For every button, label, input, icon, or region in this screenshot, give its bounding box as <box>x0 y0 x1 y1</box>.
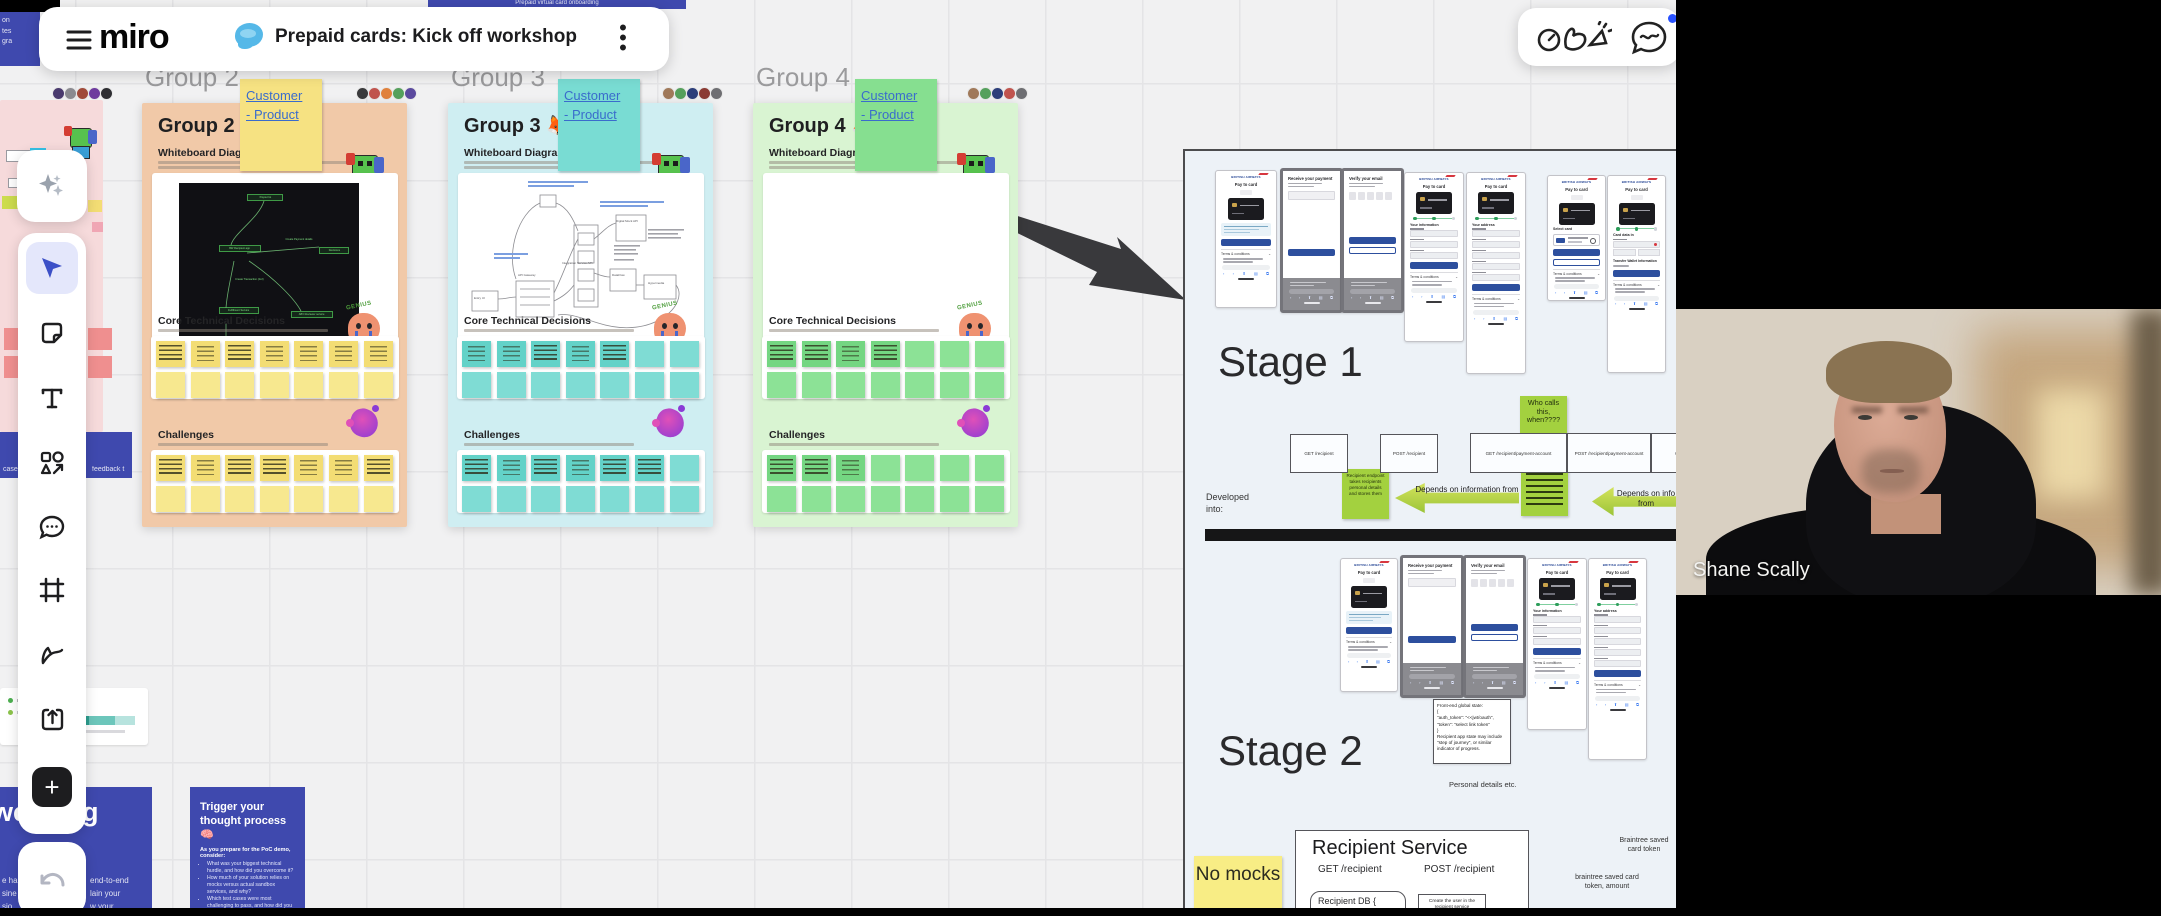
sticky-grid-card <box>457 336 705 399</box>
phone-title: Verify your email <box>1349 176 1396 181</box>
mini-sticky-note[interactable] <box>364 455 393 481</box>
phone-mockup[interactable]: BRITISH AIRWAYSPay to cardTerms & condit… <box>1340 558 1398 692</box>
ai-sparkles-icon[interactable] <box>25 160 77 212</box>
mini-sticky-note[interactable] <box>462 455 491 481</box>
arrow-to-stage-board <box>1005 213 1186 300</box>
sticky-link-product[interactable]: - Product <box>246 107 299 122</box>
mini-sticky-note[interactable] <box>871 455 900 481</box>
undo-icon[interactable] <box>26 855 78 907</box>
mini-sticky-note[interactable] <box>600 372 629 398</box>
mini-sticky-note[interactable] <box>975 372 1004 398</box>
mini-sticky-note[interactable] <box>462 372 491 398</box>
mini-sticky-note[interactable] <box>767 455 796 481</box>
sticky-link-product[interactable]: - Product <box>564 107 617 122</box>
sticky-note-tool[interactable] <box>26 307 78 359</box>
mini-sticky-note[interactable] <box>905 372 934 398</box>
mini-sticky-note[interactable] <box>871 372 900 398</box>
mini-sticky-note[interactable] <box>156 486 185 512</box>
mini-sticky-note[interactable] <box>329 455 358 481</box>
mini-sticky-note[interactable] <box>802 455 831 481</box>
mini-sticky-note[interactable] <box>975 486 1004 512</box>
section-subtext-line <box>158 329 328 332</box>
diagram-node-label: DataFlow <box>612 273 625 277</box>
mini-sticky-note[interactable] <box>497 455 526 481</box>
mini-sticky-note[interactable] <box>940 341 969 367</box>
thought-bubble-icon <box>235 23 263 47</box>
person-eye-r <box>1904 415 1918 420</box>
group-title: Group 3 🦊 <box>464 113 571 138</box>
avatar <box>1015 87 1028 100</box>
add-plus-tool[interactable]: + <box>26 761 78 813</box>
create-user-box[interactable]: Create the user in the recipient service <box>1418 894 1486 908</box>
mini-sticky-note[interactable] <box>225 372 254 398</box>
pink-splat-sticker <box>957 405 993 443</box>
sticky-grid-card <box>151 450 399 513</box>
phone-title: Receive your payment <box>1408 563 1456 568</box>
person-brow-shadow <box>1852 407 1882 413</box>
section-subtext-line <box>158 443 328 446</box>
sticky-grid-card <box>457 450 705 513</box>
main-toolbar: + <box>18 233 86 834</box>
mini-sticky-note[interactable] <box>836 486 865 512</box>
mini-sticky-note[interactable] <box>497 341 526 367</box>
mini-sticky-note[interactable] <box>670 486 699 512</box>
miro-logo[interactable]: miro <box>99 18 169 57</box>
phone-title: Pay to card <box>1548 187 1605 192</box>
diagram-node-label: Hypermedia <box>648 281 664 285</box>
chat-bubble-icon[interactable] <box>1630 20 1668 56</box>
mini-sticky-note[interactable] <box>670 341 699 367</box>
sticky-customer-product[interactable]: Customer- Product <box>240 79 322 171</box>
frontend-note-line: indicator of progress. <box>1437 746 1507 752</box>
video-feed: Shane Scally <box>1676 309 2161 595</box>
avatar <box>710 87 723 100</box>
mini-sticky-note[interactable] <box>364 486 393 512</box>
mini-sticky-note[interactable] <box>225 455 254 481</box>
mini-sticky-note[interactable] <box>635 341 664 367</box>
frame-label-4[interactable]: Group 4 <box>756 62 850 93</box>
genius-sticker-text: GENIUS <box>652 300 679 311</box>
black-divider-bar <box>1205 529 1676 541</box>
board-header: miro Prepaid cards: Kick off workshop ••… <box>39 7 669 71</box>
frame-tool[interactable] <box>26 564 78 616</box>
sticky-no-mocks[interactable]: No mocks <box>1194 856 1282 908</box>
phone-terms-label: Terms & conditions <box>1533 661 1562 665</box>
person-brow-shadow2 <box>1898 407 1928 413</box>
section-subtext-line <box>464 443 634 446</box>
mini-sticky-note[interactable] <box>905 486 934 512</box>
mini-sticky-note[interactable] <box>566 372 595 398</box>
section-heading-whiteboard: Whiteboard Diagram <box>464 147 567 159</box>
mini-sticky-note[interactable] <box>566 486 595 512</box>
notification-dot <box>1668 14 1676 23</box>
braintree-label-2: braintree saved card token, amount <box>1572 873 1642 891</box>
sticky-link-product[interactable]: - Product <box>861 107 914 122</box>
phone-mockup[interactable]: BRITISH AIRWAYSPay to cardCard data inTr… <box>1607 175 1666 373</box>
undo-panel <box>18 842 86 908</box>
sticky-recipient-endpoint[interactable]: Recipient endpoint takes recipients pers… <box>1342 469 1389 519</box>
section-heading-core: Core Technical Decisions <box>769 315 896 327</box>
phone-title: Verify your email <box>1471 563 1518 568</box>
section-subtext-line <box>464 329 634 332</box>
genius-sticker-text: GENIUS <box>957 300 984 311</box>
text-tool[interactable] <box>26 372 78 424</box>
upload-tool[interactable] <box>26 693 78 745</box>
phone-mockup[interactable]: Verify your email‹›⬆▤⧉ <box>1341 168 1404 313</box>
phone-section-label: Your information <box>1410 223 1458 227</box>
mini-sticky-note[interactable] <box>802 341 831 367</box>
phone-title: Receive your payment <box>1288 176 1335 181</box>
phone-mockup[interactable]: BRITISH AIRWAYSPay to cardYour informati… <box>1527 558 1587 730</box>
section-heading-core: Core Technical Decisions <box>464 315 591 327</box>
endpoint-box[interactable]: GET /recipient/payment-account <box>1470 433 1567 473</box>
mini-sticky-note[interactable] <box>670 455 699 481</box>
mini-sticky-note[interactable] <box>670 372 699 398</box>
sticky-customer-product[interactable]: Customer- Product <box>558 79 640 171</box>
person-hair <box>1826 341 1952 403</box>
phone-title: Pay to card <box>1589 570 1646 575</box>
reactions-button[interactable] <box>1536 21 1612 55</box>
phone-section-label: Your information <box>1533 609 1581 613</box>
mini-sticky-note[interactable] <box>497 372 526 398</box>
mini-sticky-note[interactable] <box>191 341 220 367</box>
mini-sticky-note[interactable] <box>802 372 831 398</box>
sticky-grid-card <box>151 336 399 399</box>
phone-section-label: Your address <box>1594 609 1641 613</box>
mini-sticky-note[interactable] <box>635 372 664 398</box>
pink-splat-sticker <box>346 405 382 443</box>
sticky-link-customer[interactable]: Customer <box>861 88 917 103</box>
mini-sticky-note[interactable] <box>767 341 796 367</box>
phone-section-label: Your address <box>1472 223 1520 227</box>
phone-title: Pay to card <box>1528 570 1586 575</box>
sticky-customer-product[interactable]: Customer- Product <box>855 79 937 171</box>
diagram-node-label: Integration Service API <box>562 261 593 265</box>
pink-splat-sticker <box>652 405 688 443</box>
video-bg-shade <box>2131 309 2161 595</box>
mini-sticky-note[interactable] <box>225 486 254 512</box>
person-eye-l <box>1858 415 1872 420</box>
phone-section-label: Card data in <box>1613 233 1660 237</box>
mini-sticky-note[interactable] <box>364 341 393 367</box>
phone-terms-label: Terms & conditions <box>1472 297 1501 301</box>
phone-section-label: Select card <box>1553 227 1600 231</box>
mini-sticky-note[interactable] <box>260 372 289 398</box>
section-heading-challenges: Challenges <box>464 429 520 441</box>
phone-mockup[interactable]: BRITISH AIRWAYSPay to cardYour addressTe… <box>1588 558 1647 760</box>
phone-title: Pay to card <box>1608 187 1665 192</box>
pen-tool[interactable] <box>26 629 78 681</box>
genius-sticker-text: GENIUS <box>346 300 373 311</box>
stage1-label: Stage 1 <box>1218 338 1363 386</box>
personal-details-label: Personal details etc. <box>1449 780 1517 789</box>
depends-arrow-2-label: Depends on info from <box>1612 489 1676 509</box>
mini-sticky-note[interactable] <box>566 341 595 367</box>
phone-terms-label: Terms & conditions <box>1346 640 1375 644</box>
mini-sticky-note[interactable] <box>566 455 595 481</box>
mini-sticky-note[interactable] <box>329 341 358 367</box>
sticky-grid-card <box>762 450 1010 513</box>
section-subtext-line <box>769 443 939 446</box>
mini-sticky-note[interactable] <box>531 486 560 512</box>
mini-sticky-note[interactable] <box>497 486 526 512</box>
mini-sticky-note[interactable] <box>329 372 358 398</box>
mini-sticky-note[interactable] <box>329 486 358 512</box>
sticky-link-customer[interactable]: Customer <box>246 88 302 103</box>
mini-sticky-note[interactable] <box>767 372 796 398</box>
phone-mockup[interactable]: BRITISH AIRWAYSPay to cardSelect cardTer… <box>1547 175 1606 301</box>
frontend-state-note[interactable]: Front-end global state:{ "auth_token": "… <box>1433 699 1511 764</box>
mini-sticky-note[interactable] <box>260 341 289 367</box>
mini-sticky-note[interactable] <box>260 486 289 512</box>
mini-sticky-note[interactable] <box>294 455 323 481</box>
hamburger-menu-icon[interactable] <box>65 28 93 52</box>
depends-arrow-1-label: Depends on information from <box>1412 485 1522 495</box>
video-bg-lamp <box>2036 389 2106 499</box>
kebab-menu-icon[interactable]: ••• <box>615 23 631 53</box>
mini-sticky-note[interactable] <box>462 486 491 512</box>
mini-sticky-note[interactable] <box>531 372 560 398</box>
mini-sticky-note[interactable] <box>191 372 220 398</box>
phone-title: Pay to card <box>1467 184 1525 189</box>
phone-mockup[interactable]: BRITISH AIRWAYSPay to cardYour addressTe… <box>1466 172 1526 374</box>
mini-sticky-note[interactable] <box>905 455 934 481</box>
comment-tool[interactable] <box>26 501 78 553</box>
developed-into-label: Developed into: <box>1206 492 1252 515</box>
phone-terms-label: Terms & conditions <box>1410 275 1439 279</box>
section-heading-challenges: Challenges <box>158 429 214 441</box>
diagram-node-label: Entry UI <box>474 296 485 300</box>
phone-mockup[interactable]: Receive your payment‹›⬆▤⧉ <box>1280 168 1343 313</box>
mini-sticky-note[interactable] <box>871 486 900 512</box>
mini-sticky-note[interactable] <box>635 455 664 481</box>
phone-title: Pay to card <box>1216 182 1276 187</box>
mini-sticky-note[interactable] <box>191 455 220 481</box>
mini-sticky-note[interactable] <box>294 486 323 512</box>
endpoint-box[interactable]: GET / <box>1651 433 1676 473</box>
miro-canvas[interactable]: on tes gra Prepaid virtual card onboardi… <box>0 0 1676 908</box>
select-cursor-tool[interactable] <box>26 242 78 294</box>
braintree-label-1: Braintree saved card token <box>1613 836 1675 854</box>
phone-terms-label: Terms & conditions <box>1613 283 1642 287</box>
mini-sticky-note[interactable] <box>836 455 865 481</box>
mini-sticky-note[interactable] <box>462 341 491 367</box>
recipient-service-box[interactable]: Recipient Service GET /recipient POST /r… <box>1295 830 1529 908</box>
phone-mockup[interactable]: BRITISH AIRWAYSPay to cardTerms & condit… <box>1215 170 1277 308</box>
phone-title: Pay to card <box>1341 570 1397 575</box>
section-heading-challenges: Challenges <box>769 429 825 441</box>
avatar <box>404 87 417 100</box>
section-subtext-line <box>769 329 939 332</box>
mini-sticky-note[interactable] <box>600 341 629 367</box>
mini-sticky-note[interactable] <box>225 341 254 367</box>
reactions-panel <box>1518 8 1676 66</box>
phone-title: Pay to card <box>1405 184 1463 189</box>
mini-sticky-note[interactable] <box>635 486 664 512</box>
mini-sticky-note[interactable] <box>156 341 185 367</box>
sticky-link-customer[interactable]: Customer <box>564 88 620 103</box>
mini-sticky-note[interactable] <box>156 455 185 481</box>
mini-sticky-note[interactable] <box>600 486 629 512</box>
mini-sticky-note[interactable] <box>940 455 969 481</box>
recipient-db-box[interactable]: Recipient DB { <box>1310 891 1406 908</box>
mini-sticky-note[interactable] <box>600 455 629 481</box>
sticky-green-lined[interactable] <box>1521 466 1568 516</box>
mini-sticky-note[interactable] <box>836 341 865 367</box>
phone-terms-label: Terms & conditions <box>1553 272 1582 276</box>
diagram-node-label: Digital Mock API <box>616 219 638 223</box>
phone-terms-label: Terms & conditions <box>1221 252 1250 256</box>
mini-sticky-note[interactable] <box>191 486 220 512</box>
mini-sticky-note[interactable] <box>836 372 865 398</box>
mini-sticky-note[interactable] <box>871 341 900 367</box>
mini-sticky-note[interactable] <box>940 372 969 398</box>
section-heading-core: Core Technical Decisions <box>158 315 285 327</box>
shapes-tool[interactable] <box>26 437 78 489</box>
stage2-label: Stage 2 <box>1218 727 1363 775</box>
mini-sticky-note[interactable] <box>294 341 323 367</box>
endpoint-box[interactable]: GET /recipient <box>1290 434 1348 473</box>
avatar <box>100 87 113 100</box>
phone-mockup[interactable]: Receive your payment‹›⬆▤⧉ <box>1400 555 1464 698</box>
sticky-grid-card <box>762 336 1010 399</box>
mini-sticky-note[interactable] <box>802 486 831 512</box>
ai-tool-panel <box>17 150 87 222</box>
mini-sticky-note[interactable] <box>294 372 323 398</box>
mini-sticky-note[interactable] <box>260 455 289 481</box>
mini-sticky-note[interactable] <box>975 455 1004 481</box>
mini-sticky-note[interactable] <box>975 341 1004 367</box>
mini-sticky-note[interactable] <box>767 486 796 512</box>
diagram-node-label: API Gateway <box>518 273 536 277</box>
video-name-label: Shane Scally <box>1693 559 1810 582</box>
phone-mockup[interactable]: BRITISH AIRWAYSPay to cardYour informati… <box>1404 172 1464 342</box>
board-title[interactable]: Prepaid cards: Kick off workshop <box>275 26 577 48</box>
mini-sticky-note[interactable] <box>940 486 969 512</box>
endpoint-box[interactable]: POST /recipient/payment-account <box>1567 433 1651 473</box>
mini-sticky-note[interactable] <box>531 341 560 367</box>
mini-sticky-note[interactable] <box>364 372 393 398</box>
mini-sticky-note[interactable] <box>531 455 560 481</box>
mini-sticky-note[interactable] <box>905 341 934 367</box>
phone-mockup[interactable]: Verify your email‹›⬆▤⧉ <box>1463 555 1526 698</box>
phone-terms-label: Terms & conditions <box>1594 683 1623 687</box>
phone-transfer-label: Transfer Wallet Information <box>1613 259 1660 263</box>
mini-sticky-note[interactable] <box>156 372 185 398</box>
endpoint-box[interactable]: POST /recipient <box>1380 434 1438 473</box>
person-beard <box>1862 449 1920 493</box>
